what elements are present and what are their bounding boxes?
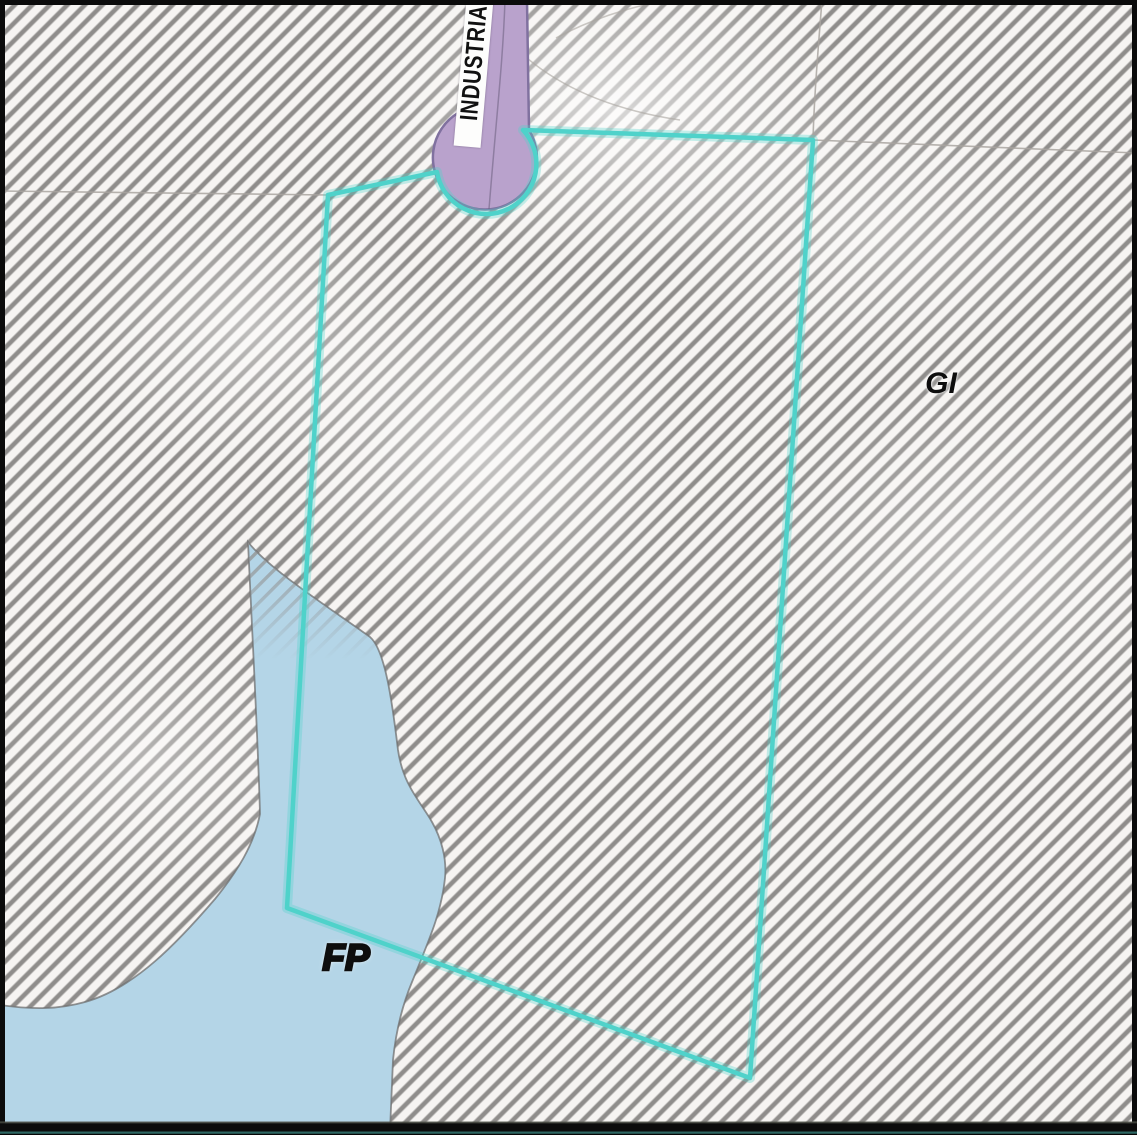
map-canvas[interactable]: INDUSTRIAL GI FP <box>0 0 1137 1135</box>
zone-label-general-industrial: GI <box>925 367 957 401</box>
parcel-boundary-lines <box>0 0 1137 195</box>
floodplain-hatch-overlap <box>0 542 445 1131</box>
parcel-highlight[interactable] <box>287 130 813 1078</box>
zone-label-floodplain: FP <box>322 937 369 979</box>
map-feature-layer <box>0 0 1137 1135</box>
